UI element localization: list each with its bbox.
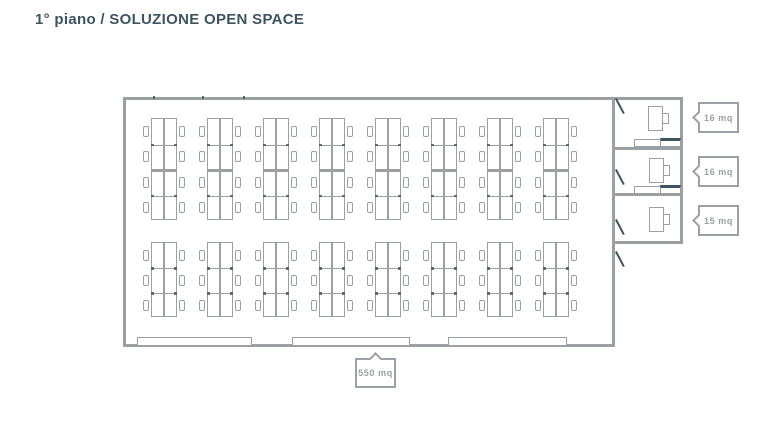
chair xyxy=(347,177,353,188)
desk-divider xyxy=(544,145,568,146)
chair xyxy=(403,300,409,311)
desk-divider xyxy=(219,243,221,316)
desk-divider xyxy=(376,169,400,172)
desk-block xyxy=(543,118,569,220)
desk-joint-tick xyxy=(151,267,154,270)
chair xyxy=(199,177,205,188)
chair xyxy=(311,177,317,188)
desk-joint-tick xyxy=(454,292,457,295)
chair xyxy=(367,202,373,213)
desk-joint-tick xyxy=(487,267,490,270)
chair xyxy=(423,250,429,261)
desk-joint-tick xyxy=(207,292,210,295)
office-area-callout-1: 16 mq xyxy=(698,102,739,133)
office-block-top-wall xyxy=(615,97,683,100)
desk-block xyxy=(207,118,233,220)
chair xyxy=(515,275,521,286)
chair xyxy=(143,275,149,286)
chair xyxy=(367,151,373,162)
chair xyxy=(235,177,241,188)
chair xyxy=(179,126,185,137)
chair xyxy=(515,300,521,311)
desk-joint-tick xyxy=(263,292,266,295)
office-divider-wall-1 xyxy=(614,147,681,150)
desk-cluster xyxy=(367,242,409,317)
desk-joint-tick xyxy=(286,292,289,295)
desk-joint-tick xyxy=(454,267,457,270)
chair xyxy=(291,202,297,213)
desk-block xyxy=(151,118,177,220)
desk-block xyxy=(319,118,345,220)
desk-divider xyxy=(208,145,232,146)
desk-joint-tick xyxy=(319,292,322,295)
desk-joint-tick xyxy=(431,195,434,198)
chair xyxy=(311,202,317,213)
desk-joint-tick xyxy=(375,195,378,198)
desk-divider xyxy=(376,268,400,269)
chair xyxy=(179,275,185,286)
desk-joint-tick xyxy=(487,292,490,295)
chair xyxy=(179,202,185,213)
desk-divider xyxy=(320,169,344,172)
chair xyxy=(423,126,429,137)
callout-arrow-left-icon xyxy=(692,165,705,178)
chair xyxy=(423,300,429,311)
desk-joint-tick xyxy=(342,144,345,147)
desk-divider xyxy=(152,169,176,172)
office-area-label: 16 mq xyxy=(704,167,733,177)
chair xyxy=(459,202,465,213)
desk-divider xyxy=(544,268,568,269)
chair xyxy=(367,126,373,137)
desk-divider xyxy=(152,268,176,269)
desk-block xyxy=(431,242,457,317)
desk-joint-tick xyxy=(487,195,490,198)
chair xyxy=(423,202,429,213)
chair xyxy=(255,126,261,137)
floor-plan-canvas: 1° piano / SOLUZIONE OPEN SPACE 16 mq 16… xyxy=(0,0,768,446)
desk-divider xyxy=(208,268,232,269)
desk-cluster xyxy=(423,242,465,317)
callout-arrow-left-icon xyxy=(692,111,705,124)
office-area-callout-3: 15 mq xyxy=(698,205,739,236)
chair xyxy=(515,177,521,188)
chair xyxy=(143,177,149,188)
office-block-bottom-wall xyxy=(612,241,683,244)
chair xyxy=(311,151,317,162)
desk-cluster xyxy=(311,118,353,220)
desk-divider xyxy=(488,293,512,294)
chair xyxy=(423,275,429,286)
desk-divider xyxy=(320,145,344,146)
desk-joint-tick xyxy=(375,267,378,270)
office-cabinet-dark xyxy=(660,185,681,194)
desk-divider xyxy=(432,196,456,197)
desk-divider xyxy=(387,243,389,316)
office-area-callout-2: 16 mq xyxy=(698,156,739,187)
chair xyxy=(179,300,185,311)
chair xyxy=(291,300,297,311)
desk-joint-tick xyxy=(566,144,569,147)
chair xyxy=(291,126,297,137)
chair xyxy=(311,250,317,261)
desk-joint-tick xyxy=(487,144,490,147)
chair xyxy=(179,151,185,162)
chair xyxy=(459,126,465,137)
chair xyxy=(479,275,485,286)
desk-joint-tick xyxy=(319,267,322,270)
open-space-area-callout: 550 mq xyxy=(355,358,396,388)
desk-divider xyxy=(544,293,568,294)
door-swing-icon xyxy=(615,169,624,185)
desk-block xyxy=(207,242,233,317)
desk-block xyxy=(263,118,289,220)
desk-joint-tick xyxy=(263,267,266,270)
chair xyxy=(535,275,541,286)
desk-joint-tick xyxy=(174,195,177,198)
desk-joint-tick xyxy=(151,144,154,147)
desk-joint-tick xyxy=(207,144,210,147)
office-chair xyxy=(662,113,669,124)
chair xyxy=(255,300,261,311)
office-cabinet xyxy=(634,186,661,194)
chair xyxy=(199,275,205,286)
office-desk xyxy=(649,158,664,183)
chair xyxy=(571,126,577,137)
chair xyxy=(571,177,577,188)
desk-divider xyxy=(208,293,232,294)
chair xyxy=(535,177,541,188)
chair xyxy=(199,202,205,213)
desk-divider xyxy=(488,196,512,197)
chair xyxy=(515,126,521,137)
desk-joint-tick xyxy=(510,195,513,198)
desk-divider xyxy=(555,243,557,316)
desk-block xyxy=(151,242,177,317)
door-swing-icon xyxy=(615,219,624,235)
desk-joint-tick xyxy=(286,144,289,147)
desk-divider xyxy=(432,145,456,146)
desk-divider xyxy=(432,268,456,269)
chair xyxy=(571,300,577,311)
wall-tick xyxy=(243,96,245,99)
desk-block xyxy=(263,242,289,317)
chair xyxy=(291,275,297,286)
desk-divider xyxy=(208,196,232,197)
desk-cluster xyxy=(535,118,577,220)
desk-joint-tick xyxy=(207,267,210,270)
door-swing-icon xyxy=(615,251,624,267)
desk-joint-tick xyxy=(174,292,177,295)
chair xyxy=(571,202,577,213)
chair xyxy=(291,250,297,261)
desk-divider xyxy=(264,196,288,197)
door-swing-icon xyxy=(615,98,624,114)
desk-joint-tick xyxy=(342,195,345,198)
desk-joint-tick xyxy=(431,144,434,147)
desk-joint-tick xyxy=(263,195,266,198)
chair xyxy=(515,202,521,213)
desk-joint-tick xyxy=(566,195,569,198)
chair xyxy=(235,151,241,162)
chair xyxy=(367,177,373,188)
window-strip xyxy=(137,337,252,346)
chair xyxy=(255,151,261,162)
chair xyxy=(459,151,465,162)
desk-divider xyxy=(376,293,400,294)
desk-joint-tick xyxy=(543,267,546,270)
window-strip xyxy=(292,337,410,346)
desk-joint-tick xyxy=(342,267,345,270)
chair xyxy=(311,300,317,311)
chair xyxy=(235,202,241,213)
desk-joint-tick xyxy=(510,144,513,147)
office-desk xyxy=(649,207,664,232)
office-desk xyxy=(648,106,663,131)
chair xyxy=(347,202,353,213)
chair xyxy=(515,151,521,162)
chair xyxy=(143,202,149,213)
chair xyxy=(571,275,577,286)
chair xyxy=(235,250,241,261)
chair xyxy=(535,202,541,213)
desk-joint-tick xyxy=(230,195,233,198)
desk-cluster xyxy=(143,118,185,220)
desk-divider xyxy=(320,268,344,269)
office-chair xyxy=(663,214,670,225)
desk-divider xyxy=(432,293,456,294)
chair xyxy=(143,250,149,261)
chair xyxy=(403,202,409,213)
chair xyxy=(535,151,541,162)
desk-block xyxy=(487,118,513,220)
desk-cluster xyxy=(143,242,185,317)
chair xyxy=(291,177,297,188)
desk-divider xyxy=(376,145,400,146)
chair xyxy=(459,300,465,311)
desk-joint-tick xyxy=(230,144,233,147)
desk-joint-tick xyxy=(566,267,569,270)
desk-divider xyxy=(275,243,277,316)
chair xyxy=(255,202,261,213)
office-cabinet xyxy=(634,139,661,147)
chair xyxy=(235,126,241,137)
chair xyxy=(459,250,465,261)
office-area-label: 16 mq xyxy=(704,113,733,123)
desk-divider xyxy=(488,268,512,269)
desk-joint-tick xyxy=(230,267,233,270)
chair xyxy=(255,275,261,286)
desk-cluster xyxy=(255,242,297,317)
chair xyxy=(143,300,149,311)
desk-divider xyxy=(443,243,445,316)
desk-divider xyxy=(264,293,288,294)
desk-joint-tick xyxy=(263,144,266,147)
desk-block xyxy=(431,118,457,220)
chair xyxy=(459,177,465,188)
chair xyxy=(235,300,241,311)
desk-cluster xyxy=(535,242,577,317)
chair xyxy=(479,126,485,137)
chair xyxy=(403,126,409,137)
office-chair xyxy=(663,165,670,176)
chair xyxy=(535,300,541,311)
chair xyxy=(479,202,485,213)
chair xyxy=(403,250,409,261)
chair xyxy=(291,151,297,162)
desk-joint-tick xyxy=(566,292,569,295)
chair xyxy=(571,151,577,162)
desk-cluster xyxy=(479,242,521,317)
desk-divider xyxy=(152,196,176,197)
desk-divider xyxy=(488,145,512,146)
desk-divider xyxy=(488,169,512,172)
desk-joint-tick xyxy=(454,195,457,198)
chair xyxy=(311,126,317,137)
chair xyxy=(423,177,429,188)
desk-block xyxy=(375,242,401,317)
desk-divider xyxy=(331,243,333,316)
chair xyxy=(347,250,353,261)
desk-cluster xyxy=(311,242,353,317)
desk-joint-tick xyxy=(510,292,513,295)
chair xyxy=(347,151,353,162)
chair xyxy=(347,275,353,286)
desk-joint-tick xyxy=(510,267,513,270)
desk-joint-tick xyxy=(375,292,378,295)
desk-joint-tick xyxy=(543,144,546,147)
page-title: 1° piano / SOLUZIONE OPEN SPACE xyxy=(35,11,304,28)
desk-divider xyxy=(320,196,344,197)
callout-arrow-up-icon xyxy=(369,352,382,365)
desk-joint-tick xyxy=(286,267,289,270)
desk-joint-tick xyxy=(174,144,177,147)
desk-cluster xyxy=(367,118,409,220)
desk-joint-tick xyxy=(151,195,154,198)
desk-joint-tick xyxy=(543,195,546,198)
desk-cluster xyxy=(423,118,465,220)
chair xyxy=(255,177,261,188)
chair xyxy=(311,275,317,286)
desk-divider xyxy=(163,243,165,316)
chair xyxy=(143,151,149,162)
chair xyxy=(255,250,261,261)
desk-joint-tick xyxy=(431,292,434,295)
chair xyxy=(515,250,521,261)
desk-joint-tick xyxy=(151,292,154,295)
chair xyxy=(403,151,409,162)
desk-divider xyxy=(544,169,568,172)
chair xyxy=(403,275,409,286)
chair xyxy=(199,126,205,137)
desk-joint-tick xyxy=(174,267,177,270)
chair xyxy=(535,126,541,137)
desk-divider xyxy=(264,169,288,172)
desk-joint-tick xyxy=(398,195,401,198)
callout-arrow-left-icon xyxy=(692,214,705,227)
chair xyxy=(179,250,185,261)
chair xyxy=(571,250,577,261)
chair xyxy=(367,275,373,286)
desk-cluster xyxy=(255,118,297,220)
desk-joint-tick xyxy=(319,195,322,198)
window-strip xyxy=(448,337,567,346)
desk-divider xyxy=(208,169,232,172)
desk-cluster xyxy=(479,118,521,220)
office-area-label: 15 mq xyxy=(704,216,733,226)
desk-divider xyxy=(499,243,501,316)
open-space-area-label: 550 mq xyxy=(358,368,393,378)
chair xyxy=(143,126,149,137)
chair xyxy=(179,177,185,188)
desk-joint-tick xyxy=(207,195,210,198)
wall-tick xyxy=(153,96,155,99)
chair xyxy=(199,151,205,162)
chair xyxy=(347,300,353,311)
chair xyxy=(535,250,541,261)
chair xyxy=(367,250,373,261)
chair xyxy=(423,151,429,162)
desk-divider xyxy=(544,196,568,197)
desk-divider xyxy=(264,268,288,269)
chair xyxy=(199,250,205,261)
desk-divider xyxy=(264,145,288,146)
desk-joint-tick xyxy=(342,292,345,295)
desk-block xyxy=(319,242,345,317)
desk-block xyxy=(543,242,569,317)
desk-divider xyxy=(376,196,400,197)
desk-joint-tick xyxy=(319,144,322,147)
desk-joint-tick xyxy=(398,144,401,147)
desk-joint-tick xyxy=(431,267,434,270)
chair xyxy=(479,177,485,188)
desk-divider xyxy=(152,145,176,146)
desk-divider xyxy=(152,293,176,294)
desk-joint-tick xyxy=(543,292,546,295)
desk-joint-tick xyxy=(230,292,233,295)
desk-joint-tick xyxy=(375,144,378,147)
desk-joint-tick xyxy=(454,144,457,147)
chair xyxy=(235,275,241,286)
desk-joint-tick xyxy=(398,267,401,270)
desk-cluster xyxy=(199,242,241,317)
chair xyxy=(479,300,485,311)
desk-cluster xyxy=(199,118,241,220)
desk-joint-tick xyxy=(398,292,401,295)
desk-divider xyxy=(320,293,344,294)
desk-divider xyxy=(432,169,456,172)
chair xyxy=(459,275,465,286)
wall-tick xyxy=(202,96,204,99)
chair xyxy=(347,126,353,137)
chair xyxy=(403,177,409,188)
office-block-right-wall xyxy=(680,97,683,244)
desk-block xyxy=(375,118,401,220)
chair xyxy=(479,151,485,162)
desk-joint-tick xyxy=(286,195,289,198)
office-cabinet-dark xyxy=(660,138,681,147)
chair xyxy=(479,250,485,261)
chair xyxy=(367,300,373,311)
desk-block xyxy=(487,242,513,317)
chair xyxy=(199,300,205,311)
